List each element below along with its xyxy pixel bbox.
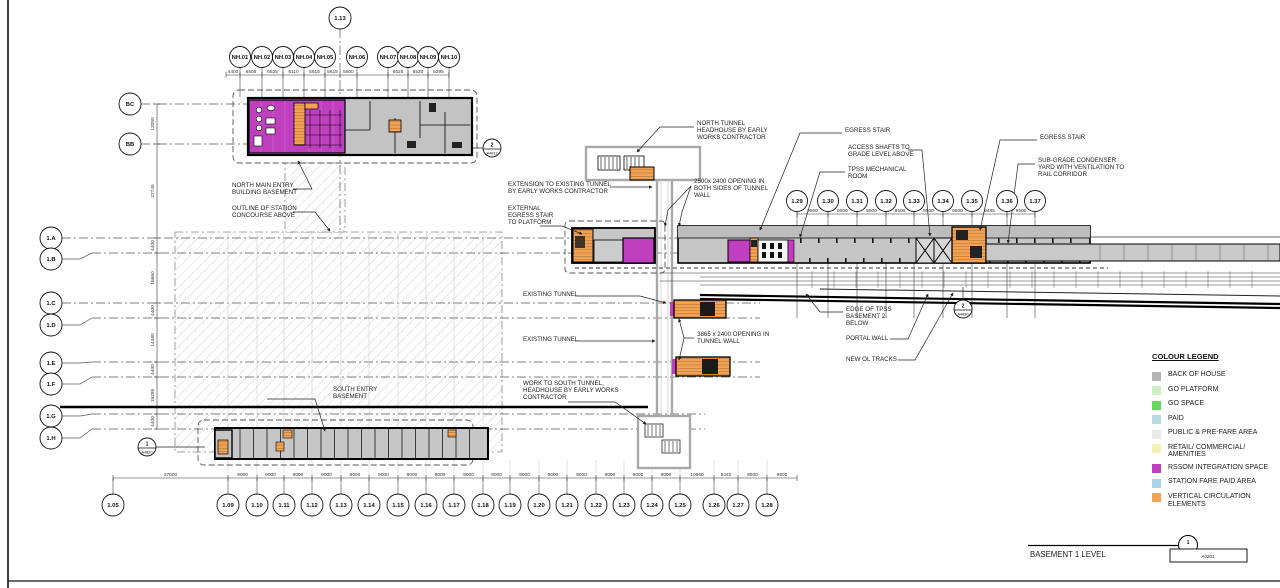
rssom-room <box>728 240 750 262</box>
svg-text:NH.08: NH.08 <box>400 55 417 61</box>
svg-text:9000: 9000 <box>661 472 672 478</box>
grid-bubble-1.32: 1.32 <box>876 191 897 212</box>
svg-text:9000: 9000 <box>237 472 248 478</box>
svg-text:1.B: 1.B <box>46 257 55 263</box>
grid-bubble-1.17: 1.17 <box>443 494 465 516</box>
stair-north-building <box>294 103 305 145</box>
condenser-yard-strip <box>986 244 1280 261</box>
stair-small <box>389 120 401 132</box>
svg-text:A4811: A4811 <box>487 152 498 156</box>
drawing-sheet: NORTH TUNNELHEADHOUSE BY EARLYWORKS CONT… <box>0 0 1280 588</box>
svg-text:4400: 4400 <box>150 416 156 427</box>
svg-text:BC: BC <box>126 102 135 108</box>
note-external-egress: EXTERNALEGRESS STAIRTO PLATFORM <box>508 205 554 226</box>
svg-text:9485: 9485 <box>984 208 995 214</box>
grid-bubble-1.F: 1.F <box>40 373 62 395</box>
svg-text:NH.02: NH.02 <box>254 55 271 61</box>
svg-text:9500: 9500 <box>807 208 818 214</box>
svg-text:6520: 6520 <box>413 69 424 75</box>
svg-text:9500: 9500 <box>895 208 906 214</box>
note-new-ol-tracks: NEW OL TRACKS <box>846 356 897 363</box>
svg-text:NH.09: NH.09 <box>420 55 437 61</box>
svg-text:9500: 9500 <box>1016 208 1027 214</box>
svg-text:1.29: 1.29 <box>791 199 803 205</box>
note-opening-both: 2500x 2400 OPENING INBOTH SIDES OF TUNNE… <box>694 178 769 199</box>
svg-text:9000: 9000 <box>463 472 474 478</box>
grid-bubble-NH.04: NH.04 <box>294 47 315 68</box>
svg-text:1.18: 1.18 <box>477 503 489 509</box>
grid-bubble-NH.03: NH.03 <box>273 47 294 68</box>
platform-end-block <box>565 221 665 273</box>
svg-text:1.20: 1.20 <box>533 503 545 509</box>
note-egress-stair-1: EGRESS STAIR <box>845 127 891 134</box>
svg-text:4400: 4400 <box>150 305 156 316</box>
svg-text:6525: 6525 <box>393 69 404 75</box>
svg-text:4400: 4400 <box>150 240 156 251</box>
svg-text:1.D: 1.D <box>46 323 55 329</box>
grid-bubble-1.26: 1.26 <box>703 494 725 516</box>
svg-text:1.25: 1.25 <box>674 503 686 509</box>
grid-bubble-1.13: 1.13 <box>329 7 351 29</box>
svg-text:12050: 12050 <box>150 117 156 131</box>
title-mark-number: 1 <box>1187 540 1190 546</box>
legend-swatch-public-pre-fare <box>1152 430 1161 439</box>
grid-bubble-1.25: 1.25 <box>669 494 691 516</box>
svg-text:NH.07: NH.07 <box>380 55 397 61</box>
svg-text:2: 2 <box>962 304 965 310</box>
grid-bubble-NH.05: NH.05 <box>315 47 336 68</box>
svg-text:1.26: 1.26 <box>708 503 720 509</box>
svg-text:5615: 5615 <box>309 69 320 75</box>
svg-text:1.16: 1.16 <box>420 503 432 509</box>
svg-text:2: 2 <box>491 143 494 149</box>
svg-text:1.05: 1.05 <box>107 503 119 509</box>
legend-item-go-platform: GO PLATFORM <box>1152 386 1276 396</box>
floor-plan-svg: NORTH TUNNELHEADHOUSE BY EARLYWORKS CONT… <box>0 0 1280 588</box>
svg-text:9000: 9000 <box>576 472 587 478</box>
grid-bubble-1.36: 1.36 <box>997 191 1018 212</box>
grid-bubble-NH.02: NH.02 <box>252 47 273 68</box>
svg-text:9500: 9500 <box>747 472 758 478</box>
legend-swatch-vertical-circulation <box>1152 493 1161 502</box>
colour-legend: COLOUR LEGEND BACK OF HOUSEGO PLATFORMGO… <box>1152 352 1276 513</box>
grid-bubble-1.09: 1.09 <box>217 494 239 516</box>
access-shafts <box>916 238 952 263</box>
svg-text:9500: 9500 <box>923 208 934 214</box>
legend-swatch-retail-commercial <box>1152 444 1161 453</box>
grid-bubble-1.14: 1.14 <box>358 494 380 516</box>
note-opening-tunnel-wall: 3865 x 2400 OPENING INTUNNEL WALL <box>697 331 769 345</box>
grid-bubble-1.31: 1.31 <box>847 191 868 212</box>
legend-item-rssom-integration: RSSOM INTEGRATION SPACE <box>1152 464 1276 474</box>
svg-text:9000: 9000 <box>605 472 616 478</box>
svg-text:1.31: 1.31 <box>851 199 863 205</box>
legend-item-vertical-circulation: VERTICAL CIRCULATION ELEMENTS <box>1152 493 1276 508</box>
note-extension-tunnel: EXTENSION TO EXISTING TUNNELBY EARLY WOR… <box>508 181 611 195</box>
svg-text:BB: BB <box>126 142 135 148</box>
section-marker-A4811: 2A4811 <box>472 139 501 157</box>
svg-text:1.19: 1.19 <box>504 503 516 509</box>
svg-text:1.37: 1.37 <box>1029 199 1041 205</box>
grid-bubble-1.10: 1.10 <box>246 494 268 516</box>
svg-text:6505: 6505 <box>246 69 257 75</box>
legend-item-go-space: GO SPACE <box>1152 400 1276 410</box>
svg-text:37000: 37000 <box>164 472 178 478</box>
svg-text:1.27: 1.27 <box>732 503 744 509</box>
grid-bubble-1.30: 1.30 <box>818 191 839 212</box>
svg-text:NH.04: NH.04 <box>296 55 313 61</box>
legend-label: STATION FARE PAID AREA <box>1168 478 1256 486</box>
grid-bubble-1.05: 1.05 <box>102 494 124 516</box>
grid-bubble-1.21: 1.21 <box>556 494 578 516</box>
legend-item-station-fare-paid: STATION FARE PAID AREA <box>1152 478 1276 488</box>
note-existing-tunnel-2: EXISTING TUNNEL <box>523 336 579 343</box>
svg-text:1.21: 1.21 <box>561 503 573 509</box>
grid-bubble-NH.01: NH.01 <box>230 47 251 68</box>
svg-text:1.11: 1.11 <box>278 503 290 509</box>
note-work-south-tunnel: WORK TO SOUTH TUNNEL,HEADHOUSE BY EARLY … <box>523 380 619 401</box>
title-block: BASEMENT 1 LEVEL 1 A0201 <box>1028 536 1247 563</box>
grid-bubble-1.16: 1.16 <box>415 494 437 516</box>
svg-text:4400: 4400 <box>228 69 239 75</box>
legend-swatch-go-platform <box>1152 386 1161 395</box>
grid-bubble-NH.06: NH.06 <box>347 47 368 68</box>
svg-text:NH.01: NH.01 <box>232 55 249 61</box>
svg-text:6525: 6525 <box>267 69 278 75</box>
svg-text:A4820: A4820 <box>142 451 153 455</box>
svg-text:9000: 9000 <box>321 472 332 478</box>
note-edge-tpss: EDGE OF TPSSBASEMENT 2BELOW <box>846 306 892 327</box>
note-north-headhouse: NORTH TUNNELHEADHOUSE BY EARLYWORKS CONT… <box>697 120 768 141</box>
grid-bubble-BB: BB <box>119 133 141 155</box>
north-entry-building <box>233 90 477 163</box>
grid-bubble-1.33: 1.33 <box>904 191 925 212</box>
svg-text:9000: 9000 <box>265 472 276 478</box>
grid-bubble-NH.09: NH.09 <box>418 47 439 68</box>
grid-bubble-1.18: 1.18 <box>472 494 494 516</box>
svg-text:4400: 4400 <box>150 364 156 375</box>
svg-text:9500: 9500 <box>952 208 963 214</box>
svg-text:1.34: 1.34 <box>937 199 949 205</box>
svg-text:5295: 5295 <box>433 69 444 75</box>
svg-text:9000: 9000 <box>435 472 446 478</box>
svg-text:1.17: 1.17 <box>448 503 460 509</box>
svg-text:1.13: 1.13 <box>334 16 346 22</box>
grid-bubble-NH.07: NH.07 <box>378 47 399 68</box>
note-existing-tunnel-1: EXISTING TUNNEL <box>523 291 579 298</box>
grid-bubble-1.D: 1.D <box>40 314 62 336</box>
svg-text:1.32: 1.32 <box>880 199 892 205</box>
svg-text:NH.05: NH.05 <box>317 55 334 61</box>
legend-item-public-pre-fare: PUBLIC & PRE-FARE AREA <box>1152 429 1276 439</box>
grid-bubble-1.G: 1.G <box>40 405 62 427</box>
legend-swatch-rssom-integration <box>1152 464 1161 473</box>
svg-text:1.A: 1.A <box>46 236 56 242</box>
grid-bubble-1.A: 1.A <box>40 227 62 249</box>
grid-bubble-1.E: 1.E <box>40 352 62 374</box>
legend-label: BACK OF HOUSE <box>1168 371 1226 379</box>
svg-text:14480: 14480 <box>150 333 156 347</box>
note-access-shafts: ACCESS SHAFTS TOGRADE LEVEL ABOVE <box>848 144 913 158</box>
note-portal-wall: PORTAL WALL <box>846 335 889 342</box>
svg-text:9000: 9000 <box>633 472 644 478</box>
legend-item-paid: PAID <box>1152 415 1276 425</box>
svg-text:1.15: 1.15 <box>392 503 404 509</box>
svg-text:5615: 5615 <box>327 69 338 75</box>
legend-label: PUBLIC & PRE-FARE AREA <box>1168 429 1257 437</box>
svg-text:NH.06: NH.06 <box>349 55 366 61</box>
legend-swatch-go-space <box>1152 401 1161 410</box>
grid-bubble-1.24: 1.24 <box>641 494 663 516</box>
svg-text:15295: 15295 <box>150 389 156 403</box>
svg-text:1.C: 1.C <box>46 301 56 307</box>
svg-text:1.23: 1.23 <box>618 503 630 509</box>
svg-text:1.G: 1.G <box>46 414 56 420</box>
svg-text:9000: 9000 <box>350 472 361 478</box>
legend-swatch-back-of-house <box>1152 372 1161 381</box>
svg-text:1.30: 1.30 <box>822 199 834 205</box>
legend-label: PAID <box>1168 415 1184 423</box>
station-concourse-hatch <box>175 163 502 452</box>
station-band <box>575 226 1280 268</box>
svg-text:6110: 6110 <box>288 69 299 75</box>
svg-text:1.28: 1.28 <box>761 503 773 509</box>
grid-bubble-1.13: 1.13 <box>330 494 352 516</box>
svg-text:9000: 9000 <box>378 472 389 478</box>
svg-text:9000: 9000 <box>519 472 530 478</box>
svg-text:1.13: 1.13 <box>335 503 347 509</box>
legend-label: RETAIL/ COMMERCIAL/ AMENITIES <box>1168 444 1276 459</box>
legend-label: GO PLATFORM <box>1168 386 1218 394</box>
note-tpss-room: TPSS MECHANICALROOM <box>848 166 907 180</box>
grid-bubble-1.23: 1.23 <box>613 494 635 516</box>
svg-text:1.12: 1.12 <box>306 503 318 509</box>
grid-bubble-1.27: 1.27 <box>727 494 749 516</box>
svg-text:9500: 9500 <box>866 208 877 214</box>
svg-text:1.H: 1.H <box>46 436 55 442</box>
svg-text:1.22: 1.22 <box>590 503 602 509</box>
legend-swatch-paid <box>1152 415 1161 424</box>
grid-bubble-1.B: 1.B <box>40 248 62 270</box>
svg-text:1.24: 1.24 <box>646 503 658 509</box>
svg-text:1.F: 1.F <box>47 382 56 388</box>
svg-text:16660: 16660 <box>150 271 156 285</box>
sheet-title: BASEMENT 1 LEVEL <box>1030 550 1106 559</box>
svg-text:1: 1 <box>146 442 149 448</box>
grid-bubble-1.29: 1.29 <box>787 191 808 212</box>
grid-bubble-1.35: 1.35 <box>962 191 983 212</box>
svg-text:9000: 9000 <box>407 472 418 478</box>
svg-text:27745: 27745 <box>150 184 156 198</box>
svg-text:1.E: 1.E <box>47 361 56 367</box>
grid-bubble-1.15: 1.15 <box>387 494 409 516</box>
grid-bubble-1.12: 1.12 <box>301 494 323 516</box>
svg-text:1.35: 1.35 <box>966 199 978 205</box>
grid-bubble-1.C: 1.C <box>40 292 62 314</box>
svg-text:9000: 9000 <box>548 472 559 478</box>
grid-bubble-1.34: 1.34 <box>933 191 954 212</box>
stair-north-headhouse <box>630 167 654 180</box>
grid-bubble-1.20: 1.20 <box>528 494 550 516</box>
svg-text:5800: 5800 <box>343 69 354 75</box>
legend-label: RSSOM INTEGRATION SPACE <box>1168 464 1268 472</box>
legend-title: COLOUR LEGEND <box>1152 352 1276 361</box>
svg-text:9000: 9000 <box>293 472 304 478</box>
svg-text:NH.10: NH.10 <box>441 55 458 61</box>
legend-swatch-station-fare-paid <box>1152 479 1161 488</box>
legend-label: VERTICAL CIRCULATION ELEMENTS <box>1168 493 1276 508</box>
grid-bubble-1.H: 1.H <box>40 427 62 449</box>
svg-text:1.33: 1.33 <box>908 199 920 205</box>
grid-bubble-1.28: 1.28 <box>756 494 778 516</box>
note-north-main-entry: NORTH MAIN ENTRYBUILDING BASEMENT <box>232 182 297 196</box>
grid-bubble-NH.08: NH.08 <box>398 47 419 68</box>
grid-bubble-1.37: 1.37 <box>1025 191 1046 212</box>
svg-text:1.14: 1.14 <box>363 503 375 509</box>
legend-item-retail-commercial: RETAIL/ COMMERCIAL/ AMENITIES <box>1152 444 1276 459</box>
legend-item-back-of-house: BACK OF HOUSE <box>1152 371 1276 381</box>
svg-text:8340: 8340 <box>721 472 732 478</box>
note-egress-stair-2: EGRESS STAIR <box>1040 134 1086 141</box>
svg-text:1.36: 1.36 <box>1001 199 1013 205</box>
svg-text:9500: 9500 <box>837 208 848 214</box>
svg-text:10660: 10660 <box>690 472 704 478</box>
note-concourse-outline: OUTLINE OF STATIONCONCOURSE ABOVE <box>232 205 297 219</box>
svg-text:1.09: 1.09 <box>222 503 234 509</box>
svg-text:1.10: 1.10 <box>251 503 263 509</box>
title-mark-sheet: A0201 <box>1201 554 1215 559</box>
grid-bubble-BC: BC <box>119 93 141 115</box>
legend-label: GO SPACE <box>1168 400 1204 408</box>
svg-text:9500: 9500 <box>777 472 788 478</box>
grid-bubble-1.11: 1.11 <box>273 494 295 516</box>
svg-text:9000: 9000 <box>491 472 502 478</box>
grid-bubble-NH.10: NH.10 <box>439 47 460 68</box>
grid-bubble-1.22: 1.22 <box>585 494 607 516</box>
note-condenser-yard: SUB-GRADE CONDENSERYARD WITH VENTILATION… <box>1038 157 1124 178</box>
grid-bubble-1.19: 1.19 <box>499 494 521 516</box>
svg-text:NH.03: NH.03 <box>275 55 292 61</box>
svg-text:A4630: A4630 <box>958 313 969 317</box>
